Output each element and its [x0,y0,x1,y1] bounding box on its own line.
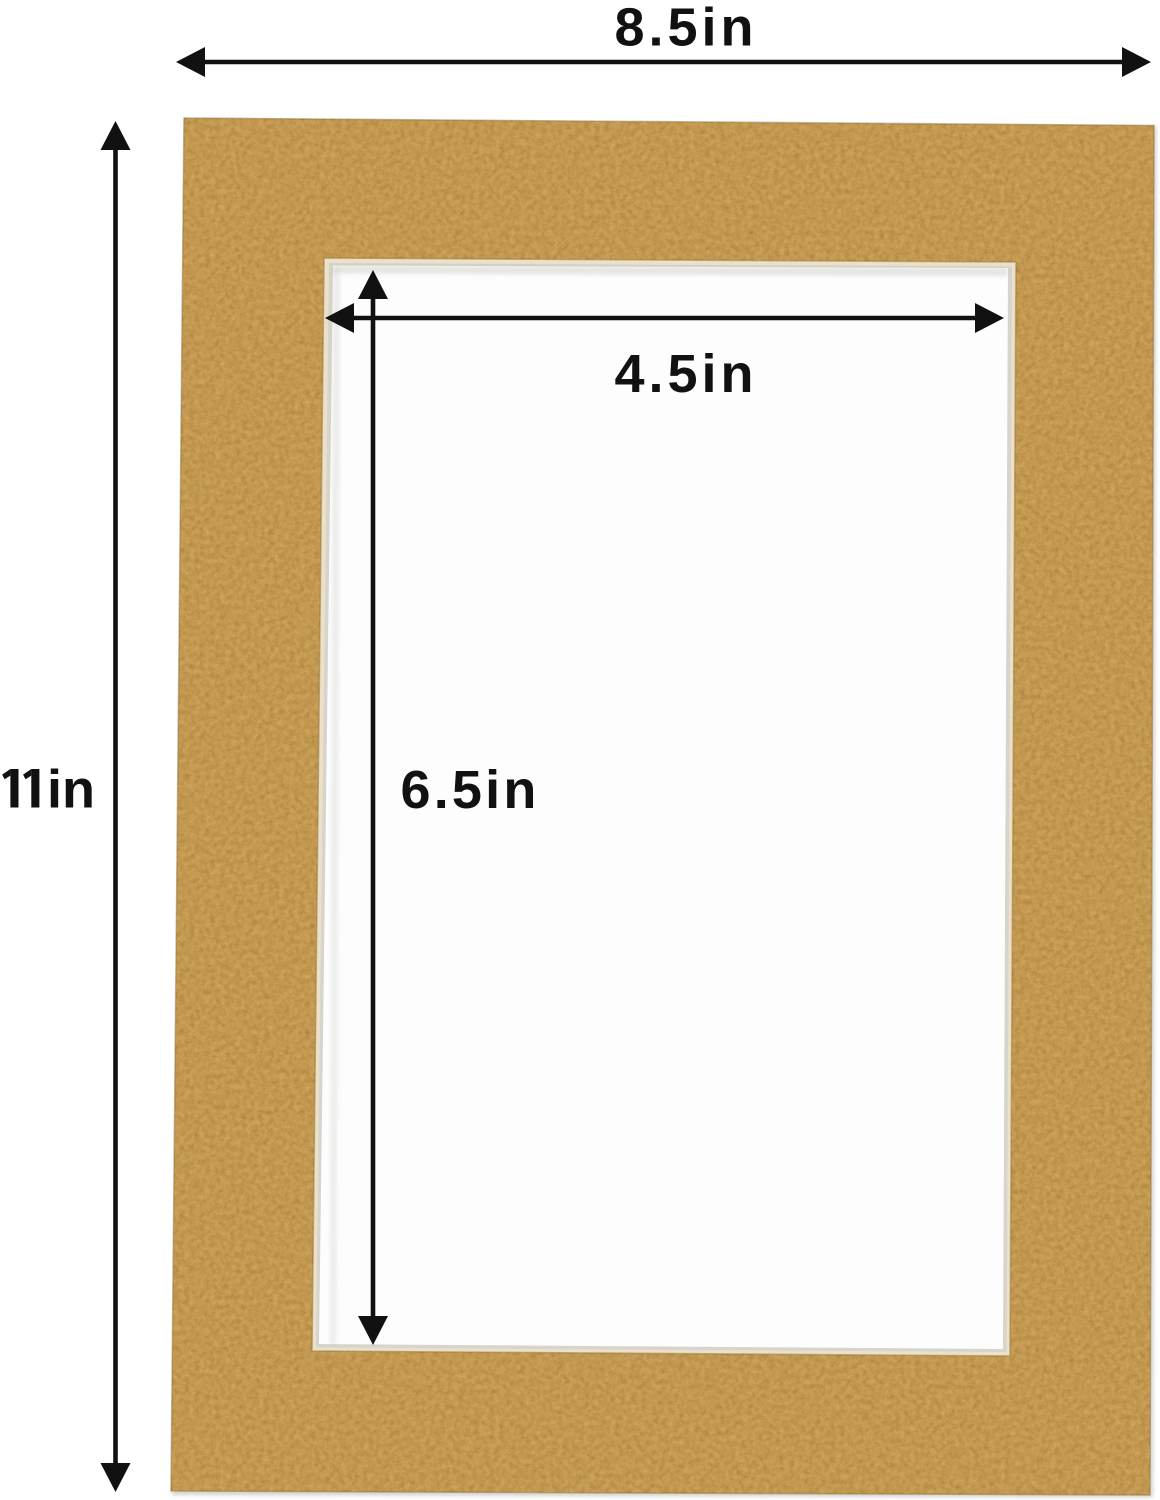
svg-text:in: in [47,760,95,820]
svg-text:8.5in: 8.5in [614,0,757,58]
svg-text:4.5in: 4.5in [614,344,757,404]
svg-text:6.5in: 6.5in [400,760,539,820]
